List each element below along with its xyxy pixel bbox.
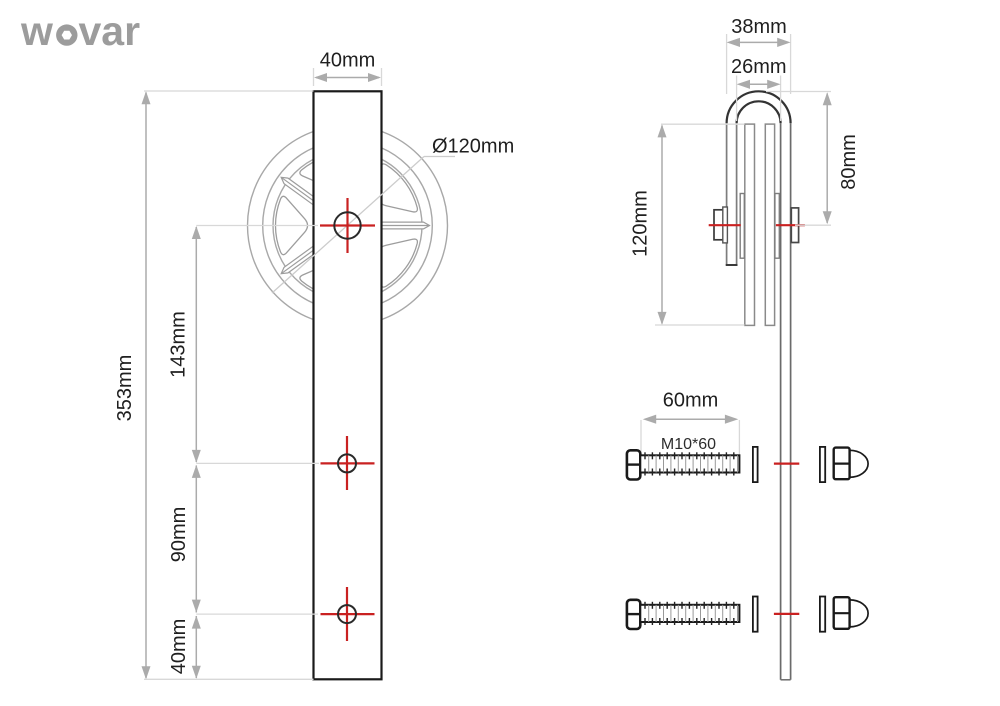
svg-text:60mm: 60mm [663,390,719,412]
svg-text:90mm: 90mm [168,507,190,563]
svg-text:w: w [20,8,53,54]
svg-text:38mm: 38mm [731,16,787,38]
svg-text:353mm: 353mm [114,355,136,422]
svg-text:M10*60: M10*60 [661,436,716,453]
svg-text:26mm: 26mm [731,56,787,78]
svg-text:var: var [79,8,141,54]
svg-text:143mm: 143mm [168,311,190,378]
svg-text:40mm: 40mm [168,619,190,675]
svg-text:40mm: 40mm [320,50,376,72]
svg-text:120mm: 120mm [630,190,652,257]
svg-text:80mm: 80mm [838,134,860,190]
svg-text:Ø120mm: Ø120mm [432,136,514,158]
